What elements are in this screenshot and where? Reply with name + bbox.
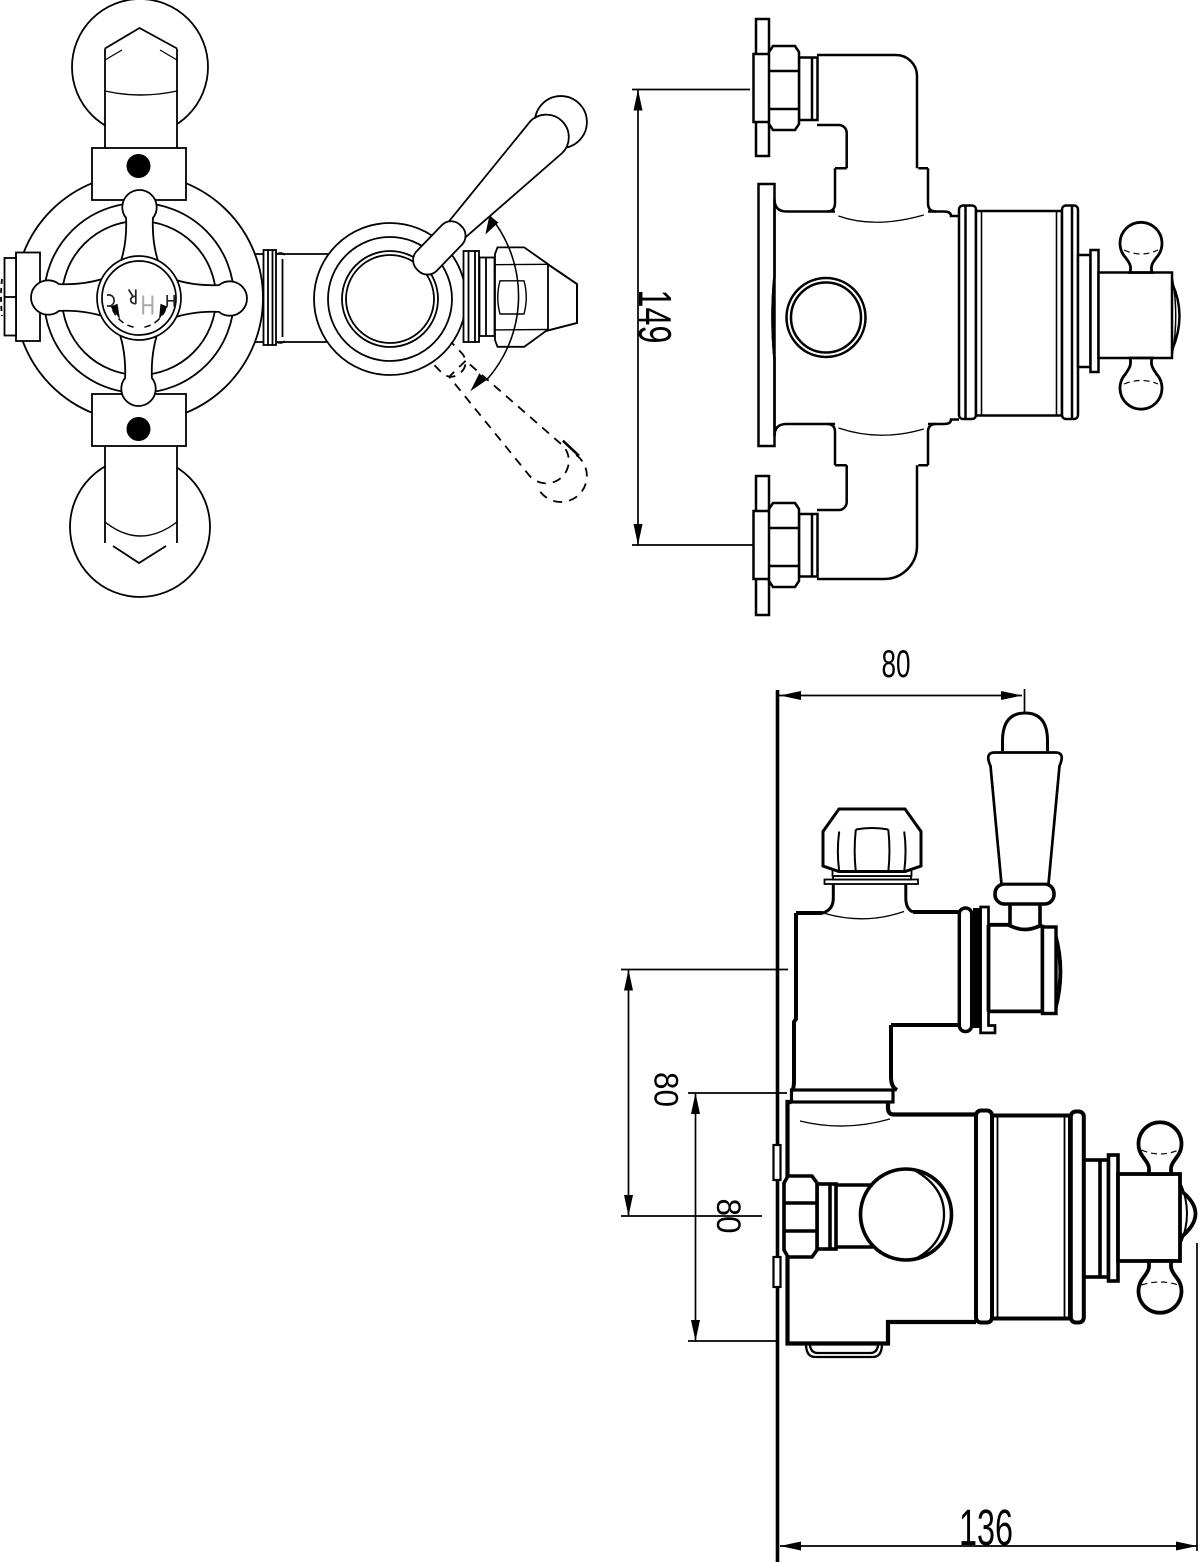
svg-text:80: 80 — [882, 643, 911, 686]
svg-text:149: 149 — [629, 290, 681, 344]
svg-text:80: 80 — [709, 1199, 747, 1234]
svg-text:136: 136 — [959, 1499, 1013, 1556]
svg-text:80: 80 — [647, 1072, 685, 1107]
